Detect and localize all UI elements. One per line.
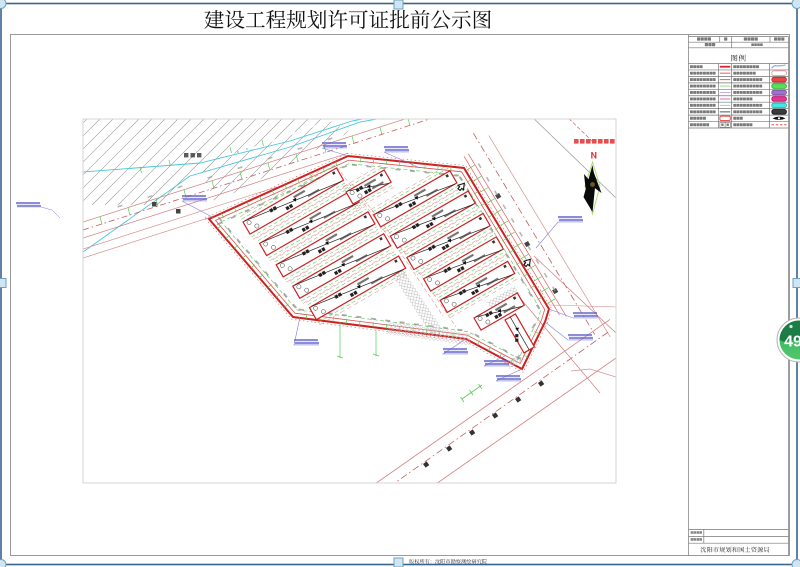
svg-text:49: 49 [784,334,800,351]
